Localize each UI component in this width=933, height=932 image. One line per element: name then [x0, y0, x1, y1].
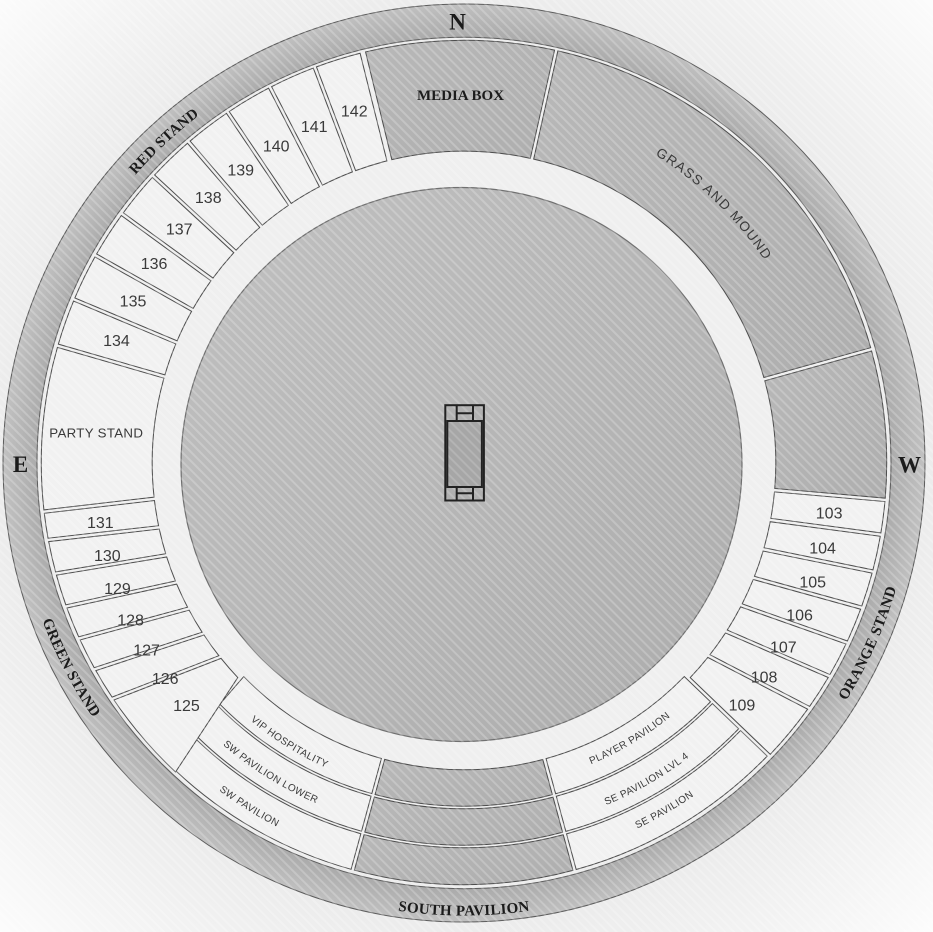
- svg-text:106: 106: [786, 608, 813, 625]
- svg-text:129: 129: [104, 581, 131, 598]
- svg-text:126: 126: [152, 671, 179, 688]
- svg-text:139: 139: [227, 162, 254, 179]
- svg-text:E: E: [13, 452, 28, 477]
- svg-text:125: 125: [173, 698, 200, 715]
- svg-text:130: 130: [94, 548, 121, 565]
- svg-text:103: 103: [816, 505, 843, 522]
- svg-text:136: 136: [141, 256, 168, 273]
- svg-text:137: 137: [166, 222, 193, 239]
- svg-text:128: 128: [117, 612, 144, 629]
- svg-text:MEDIA BOX: MEDIA BOX: [417, 88, 504, 104]
- svg-text:W: W: [898, 453, 921, 478]
- svg-text:107: 107: [770, 639, 797, 656]
- svg-text:142: 142: [341, 104, 368, 121]
- svg-text:105: 105: [799, 575, 826, 592]
- svg-text:134: 134: [103, 333, 130, 350]
- svg-text:138: 138: [195, 190, 222, 207]
- svg-text:127: 127: [133, 643, 160, 660]
- svg-text:109: 109: [729, 697, 756, 714]
- svg-text:108: 108: [751, 669, 778, 686]
- svg-text:104: 104: [809, 540, 836, 557]
- svg-text:N: N: [449, 10, 466, 35]
- svg-text:131: 131: [87, 515, 114, 532]
- svg-text:135: 135: [120, 293, 147, 310]
- svg-text:141: 141: [301, 119, 328, 136]
- svg-text:140: 140: [263, 138, 290, 155]
- svg-text:PARTY STAND: PARTY STAND: [49, 425, 143, 440]
